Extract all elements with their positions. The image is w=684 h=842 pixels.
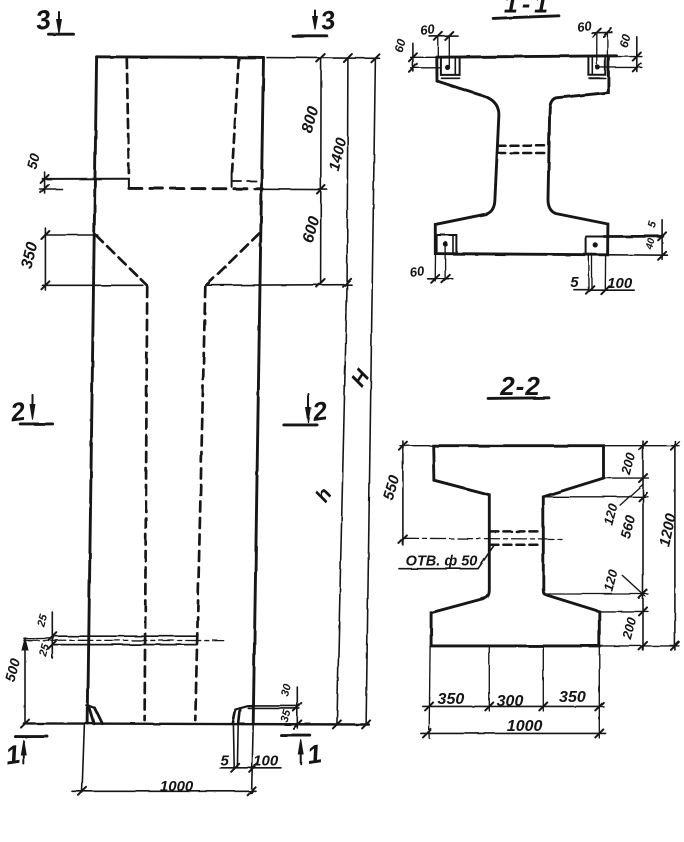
svg-text:60: 60 <box>576 18 593 35</box>
svg-text:1000: 1000 <box>160 778 194 795</box>
svg-text:1000: 1000 <box>507 718 543 735</box>
svg-text:1-1: 1-1 <box>504 0 552 19</box>
svg-text:60: 60 <box>409 263 426 280</box>
svg-text:100: 100 <box>607 275 633 292</box>
svg-text:5: 5 <box>570 274 579 291</box>
svg-text:300: 300 <box>497 693 524 710</box>
svg-text:ОТВ. ф 50: ОТВ. ф 50 <box>406 554 478 570</box>
svg-text:350: 350 <box>438 691 465 708</box>
svg-text:5: 5 <box>221 753 230 770</box>
svg-text:350: 350 <box>559 689 586 706</box>
svg-text:60: 60 <box>419 21 436 38</box>
svg-text:100: 100 <box>253 753 279 770</box>
svg-text:2-2: 2-2 <box>499 371 541 401</box>
